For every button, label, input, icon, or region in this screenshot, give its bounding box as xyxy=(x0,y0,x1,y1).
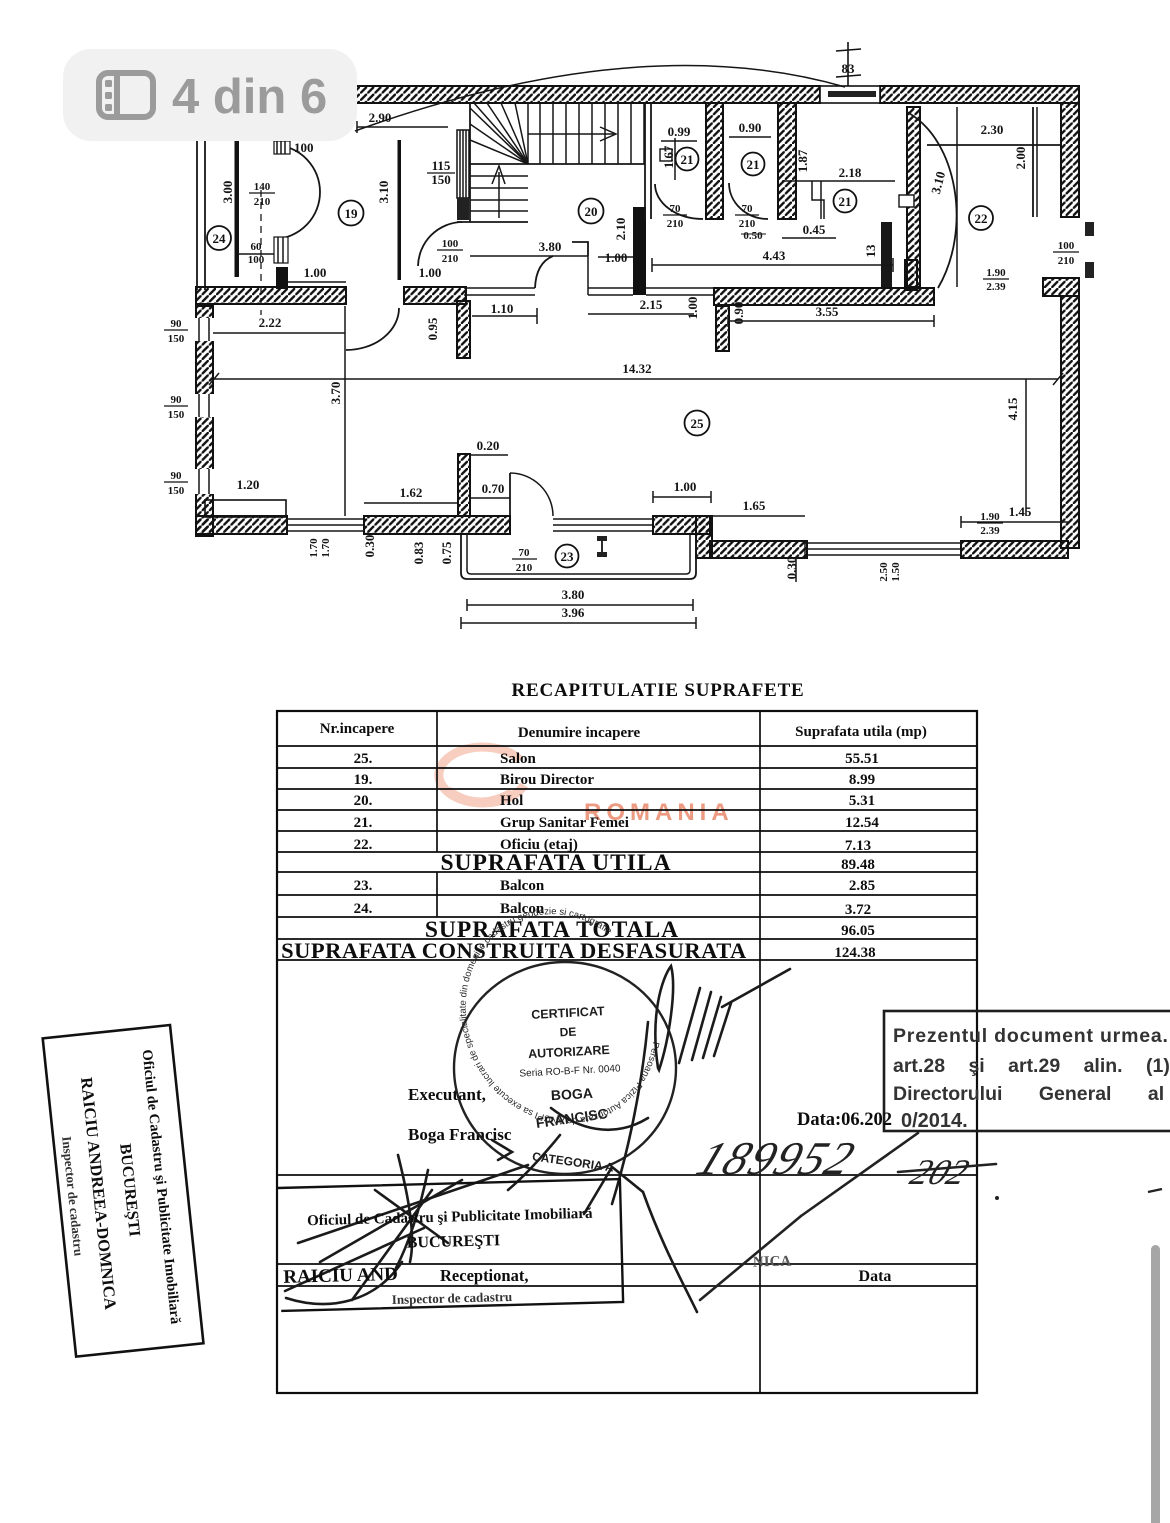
svg-text:4 din 6: 4 din 6 xyxy=(172,70,327,124)
svg-text:100: 100 xyxy=(1058,240,1075,252)
svg-text:0.90: 0.90 xyxy=(739,120,762,135)
svg-text:RAICIU AND: RAICIU AND xyxy=(283,1264,398,1288)
svg-text:100: 100 xyxy=(442,238,459,250)
svg-text:89.48: 89.48 xyxy=(841,857,875,873)
svg-text:1.10: 1.10 xyxy=(491,301,514,316)
svg-text:210: 210 xyxy=(739,218,756,230)
svg-text:25.: 25. xyxy=(354,751,373,767)
svg-text:210: 210 xyxy=(1058,255,1075,267)
svg-text:2.85: 2.85 xyxy=(849,878,875,894)
svg-text:1.00: 1.00 xyxy=(674,479,697,494)
svg-text:210: 210 xyxy=(442,253,459,265)
svg-text:3.72: 3.72 xyxy=(845,902,871,918)
svg-text:Executant,: Executant, xyxy=(408,1085,486,1104)
svg-text:1.62: 1.62 xyxy=(400,485,423,500)
svg-text:1.87: 1.87 xyxy=(795,149,810,172)
svg-text:0.83: 0.83 xyxy=(411,541,426,564)
svg-text:2.15: 2.15 xyxy=(640,297,663,312)
svg-text:70: 70 xyxy=(742,203,754,215)
svg-text:Grup Sanitar Femei: Grup Sanitar Femei xyxy=(500,815,629,831)
svg-text:21: 21 xyxy=(747,157,760,172)
svg-text:Denumire incapere: Denumire incapere xyxy=(518,725,641,741)
svg-text:0.99: 0.99 xyxy=(668,124,691,139)
svg-text:150: 150 xyxy=(168,333,185,345)
svg-text:RECAPITULATIE SUPRAFETE: RECAPITULATIE SUPRAFETE xyxy=(511,680,804,701)
svg-text:Nr.incapere: Nr.incapere xyxy=(320,721,395,737)
svg-text:8.99: 8.99 xyxy=(849,772,875,788)
svg-text:21.: 21. xyxy=(354,815,373,831)
svg-text:210: 210 xyxy=(254,196,271,208)
svg-text:2.90: 2.90 xyxy=(369,110,392,125)
svg-text:1.00: 1.00 xyxy=(304,265,327,280)
svg-text:2.10: 2.10 xyxy=(613,218,628,241)
svg-text:24: 24 xyxy=(213,231,227,246)
svg-text:3.10: 3.10 xyxy=(376,181,391,204)
svg-text:22.: 22. xyxy=(354,837,373,853)
svg-text:3.80: 3.80 xyxy=(539,239,562,254)
svg-text:4.15: 4.15 xyxy=(1005,397,1020,420)
svg-text:83: 83 xyxy=(842,61,856,76)
svg-text:1.90: 1.90 xyxy=(980,511,1000,523)
svg-text:0.70: 0.70 xyxy=(482,481,505,496)
svg-text:124.38: 124.38 xyxy=(834,945,875,961)
svg-text:Balcon: Balcon xyxy=(500,878,545,894)
svg-text:12.54: 12.54 xyxy=(845,815,879,831)
svg-text:0.20: 0.20 xyxy=(477,438,500,453)
svg-text:1.45: 1.45 xyxy=(1009,504,1032,519)
svg-text:3.96: 3.96 xyxy=(562,605,585,620)
svg-text:96.05: 96.05 xyxy=(841,923,875,939)
svg-text:150: 150 xyxy=(168,485,185,497)
svg-text:1.50: 1.50 xyxy=(890,562,902,582)
svg-text:70: 70 xyxy=(519,547,531,559)
svg-text:23: 23 xyxy=(561,549,575,564)
svg-text:BUCUREŞTI: BUCUREŞTI xyxy=(407,1232,501,1251)
svg-text:0.95: 0.95 xyxy=(425,317,440,340)
svg-text:55.51: 55.51 xyxy=(845,751,879,767)
svg-text:Receptionat,: Receptionat, xyxy=(440,1266,528,1285)
svg-text:Salon: Salon xyxy=(500,751,537,767)
svg-text:2.39: 2.39 xyxy=(986,281,1006,293)
svg-text:2.18: 2.18 xyxy=(839,165,862,180)
svg-text:0.30: 0.30 xyxy=(362,535,377,558)
svg-text:2.39: 2.39 xyxy=(980,525,1000,537)
svg-text:0.45: 0.45 xyxy=(803,222,826,237)
svg-text:210: 210 xyxy=(667,218,684,230)
svg-text:0/2014.: 0/2014. xyxy=(901,1110,968,1132)
svg-text:DE: DE xyxy=(559,1025,576,1040)
svg-text:7.13: 7.13 xyxy=(845,838,871,854)
svg-text:Inspector de cadastru: Inspector de cadastru xyxy=(392,1289,513,1307)
svg-text:25: 25 xyxy=(691,416,705,431)
svg-text:art.28 şi art.29 alin. (1): art.28 şi art.29 alin. (1) xyxy=(893,1055,1170,1077)
svg-text:Hol: Hol xyxy=(500,793,523,809)
svg-text:60: 60 xyxy=(251,241,263,253)
svg-text:115: 115 xyxy=(432,158,451,173)
svg-text:1.20: 1.20 xyxy=(237,477,260,492)
svg-text:70: 70 xyxy=(670,203,682,215)
svg-text:90: 90 xyxy=(171,470,183,482)
svg-text:19.: 19. xyxy=(354,772,373,788)
svg-text:210: 210 xyxy=(516,562,533,574)
svg-text:22: 22 xyxy=(975,211,988,226)
svg-text:13: 13 xyxy=(863,244,878,258)
svg-text:1.00: 1.00 xyxy=(419,265,442,280)
svg-text:4.43: 4.43 xyxy=(763,248,786,263)
svg-text:14.32: 14.32 xyxy=(622,361,651,376)
svg-text:Suprafata utila (mp): Suprafata utila (mp) xyxy=(795,724,927,740)
svg-text:5.31: 5.31 xyxy=(849,793,875,809)
svg-text:1.00: 1.00 xyxy=(685,297,700,320)
svg-text:Birou Director: Birou Director xyxy=(500,772,594,788)
svg-text:24.: 24. xyxy=(354,901,373,917)
svg-text:0.50: 0.50 xyxy=(743,230,763,242)
svg-text:140: 140 xyxy=(254,181,271,193)
svg-text:19: 19 xyxy=(345,206,359,221)
svg-text:NICA: NICA xyxy=(753,1254,792,1271)
svg-text:150: 150 xyxy=(168,409,185,421)
svg-text:20.: 20. xyxy=(354,793,373,809)
svg-text:0.75: 0.75 xyxy=(439,541,454,564)
svg-text:Directorului General al: Directorului General al xyxy=(893,1083,1164,1105)
svg-text:SUPRAFATA UTILA: SUPRAFATA UTILA xyxy=(440,850,671,876)
svg-text:1.90: 1.90 xyxy=(986,267,1006,279)
svg-text:BOGA: BOGA xyxy=(551,1085,594,1103)
svg-text:2.00: 2.00 xyxy=(1013,147,1028,170)
svg-text:150: 150 xyxy=(431,172,451,187)
svg-text:3.70: 3.70 xyxy=(328,382,343,405)
svg-text:2.30: 2.30 xyxy=(981,122,1004,137)
svg-text:SUPRAFATA CONSTRUITA DESFASURA: SUPRAFATA CONSTRUITA DESFASURATA xyxy=(281,938,747,963)
svg-text:3.80: 3.80 xyxy=(562,587,585,602)
svg-text:90: 90 xyxy=(171,318,183,330)
svg-text:1.65: 1.65 xyxy=(743,498,766,513)
svg-text:Prezentul document urmea.: Prezentul document urmea. xyxy=(893,1025,1169,1047)
svg-text:90: 90 xyxy=(171,394,183,406)
svg-text:3.55: 3.55 xyxy=(816,304,839,319)
svg-text:Data:06.202: Data:06.202 xyxy=(797,1110,892,1130)
svg-text:1.70: 1.70 xyxy=(308,538,320,558)
svg-text:100: 100 xyxy=(248,254,265,266)
svg-text:2.22: 2.22 xyxy=(259,315,282,330)
svg-text:2.50: 2.50 xyxy=(878,562,890,582)
svg-text:3.00: 3.00 xyxy=(220,181,235,204)
svg-text:189952: 189952 xyxy=(690,1132,864,1185)
svg-text:23.: 23. xyxy=(354,878,373,894)
svg-text:1.67: 1.67 xyxy=(661,145,676,168)
svg-text:100: 100 xyxy=(294,140,314,155)
svg-text:1.70: 1.70 xyxy=(320,538,332,558)
svg-text:21: 21 xyxy=(839,194,852,209)
svg-text:21: 21 xyxy=(681,152,694,167)
svg-text:Data: Data xyxy=(859,1268,892,1285)
svg-text:20: 20 xyxy=(585,204,598,219)
